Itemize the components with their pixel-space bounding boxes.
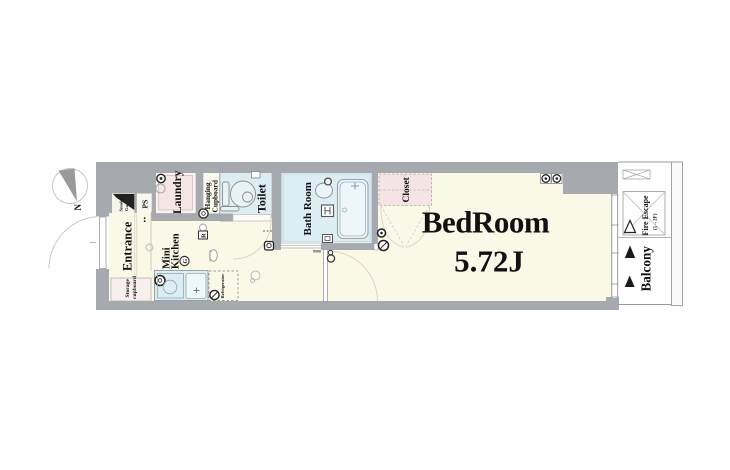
svg-text:BedRoom: BedRoom <box>422 205 550 240</box>
svg-text:(1→2F): (1→2F) <box>654 213 659 230</box>
svg-text:Toilet: Toilet <box>255 184 269 213</box>
svg-text:Balcony: Balcony <box>639 246 654 292</box>
svg-text:R: R <box>201 233 208 238</box>
svg-text:5.72J: 5.72J <box>454 244 524 279</box>
svg-text:Storage: Storage <box>125 279 131 298</box>
svg-text:Smoke: Smoke <box>119 198 124 211</box>
svg-text:Ga: Ga <box>124 204 129 211</box>
svg-text:Closet: Closet <box>402 176 412 202</box>
svg-text:Refrigerator: Refrigerator <box>220 274 225 299</box>
svg-text:G: G <box>183 259 189 264</box>
svg-text:PS: PS <box>141 200 150 209</box>
svg-text:Cupboard: Cupboard <box>210 179 219 212</box>
svg-text:Entrance: Entrance <box>121 221 135 271</box>
svg-text:cupboard: cupboard <box>132 275 138 299</box>
svg-text:Bath Room: Bath Room <box>302 182 314 235</box>
svg-text:Fire Escape: Fire Escape <box>641 195 650 236</box>
svg-text:N: N <box>73 204 83 211</box>
svg-text:Kitchen: Kitchen <box>171 233 182 269</box>
svg-text:■·■: ■·■ <box>143 217 147 222</box>
svg-text:Laundry: Laundry <box>172 170 184 214</box>
